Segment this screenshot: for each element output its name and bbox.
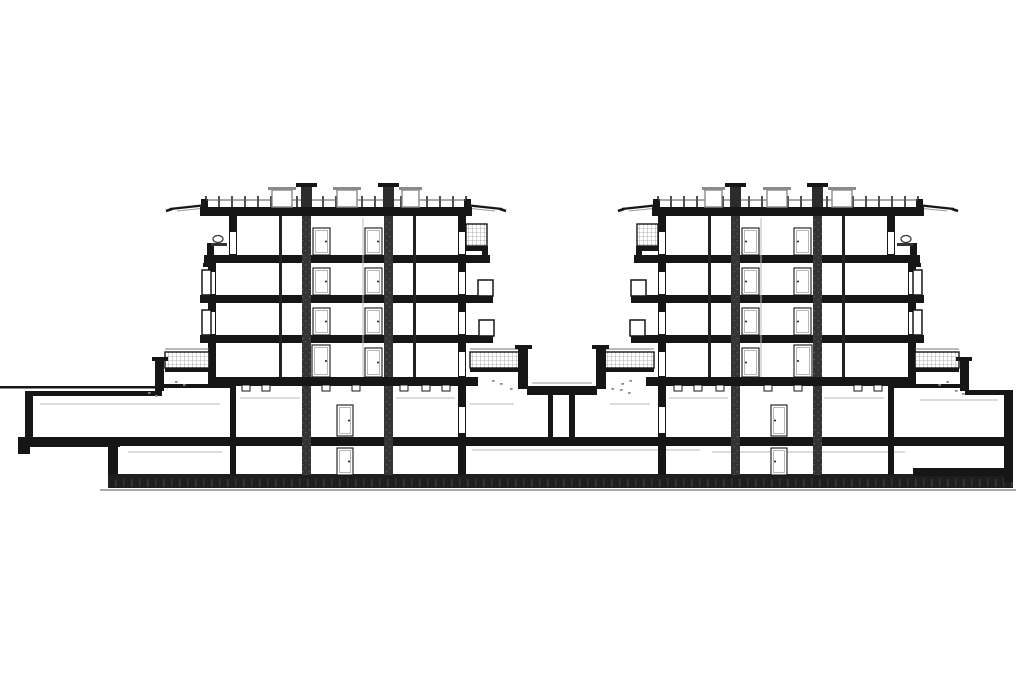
washbasin-base	[897, 243, 913, 246]
ceiling-vent	[674, 385, 682, 391]
balcony-railing	[478, 280, 493, 296]
roof-slab	[652, 207, 924, 216]
balcony-railing	[913, 270, 922, 295]
apartment-door	[742, 308, 759, 335]
partition-wall	[279, 216, 282, 377]
courtyard-wall-cap	[592, 345, 609, 349]
chimney-cap	[807, 183, 828, 187]
ground-step-right	[965, 390, 1013, 395]
basement-door	[771, 405, 787, 436]
eaves-left-tip	[952, 209, 958, 211]
apartment-door	[365, 348, 382, 377]
planter-floor	[600, 368, 654, 372]
window-opening	[659, 232, 665, 254]
basement-wall	[230, 386, 236, 475]
vent-stack	[337, 190, 357, 207]
eaves-right-tip	[500, 209, 506, 211]
basement1-floor-notch	[18, 445, 30, 454]
window-opening	[659, 312, 665, 334]
ceiling-vent	[794, 385, 802, 391]
washbasin	[213, 236, 223, 243]
balcony-railing-hatched	[637, 224, 658, 246]
planter-hatched	[470, 352, 524, 368]
basement-door-opening	[459, 407, 465, 433]
stair-core-wall-basement	[731, 386, 740, 475]
stair-core-wall	[731, 216, 740, 377]
site-and-basement	[0, 383, 1016, 490]
bollard	[155, 361, 164, 391]
basement1-floor-left	[18, 437, 120, 447]
chimney	[812, 186, 823, 207]
stair-core-wall	[813, 216, 822, 377]
stair-core-wall-basement	[813, 386, 822, 475]
planter-hatched	[600, 352, 654, 368]
apartment-door	[313, 308, 330, 335]
ground-line-left	[0, 386, 162, 389]
building-left	[152, 183, 532, 475]
balcony-railing	[631, 280, 646, 296]
basement-wall	[888, 386, 894, 475]
apartment-door	[742, 228, 759, 255]
basement1-top-slab-left	[25, 391, 162, 396]
basement-mid-slab	[118, 437, 1013, 446]
apartment-door	[313, 268, 330, 295]
balcony-railing-hatched	[466, 224, 487, 246]
courtyard-column	[569, 395, 575, 437]
ceiling-vent	[874, 385, 882, 391]
floor-slab-2	[200, 335, 493, 343]
planter-floor	[470, 368, 524, 372]
floor-slab-3	[200, 295, 493, 303]
washbasin	[901, 236, 911, 243]
vent-stack-cap	[333, 187, 361, 190]
bollard	[960, 361, 969, 391]
eaves-right-tip	[618, 209, 624, 211]
stair-core-wall-basement	[384, 386, 393, 475]
apartment-door	[365, 268, 382, 295]
chimney-cap	[725, 183, 746, 187]
ceiling-vent	[442, 385, 450, 391]
apartment-door	[794, 268, 811, 295]
basement1-left-wall	[25, 391, 33, 439]
ceiling-vent	[242, 385, 250, 391]
planter-floor	[915, 368, 959, 372]
courtyard-column	[548, 395, 553, 437]
balcony-edge-post	[636, 246, 642, 258]
floor-slab-4	[634, 255, 920, 263]
courtyard-wall	[518, 349, 528, 389]
ceiling-vent	[262, 385, 270, 391]
entry-door	[794, 345, 812, 377]
basement-door	[337, 405, 353, 436]
courtyard-wall-cap	[515, 345, 532, 349]
planter-hatched	[915, 352, 959, 368]
window-opening	[459, 312, 465, 334]
foundation-slab	[108, 474, 1013, 488]
basement-door-opening	[659, 407, 665, 433]
stair-core-wall	[384, 216, 393, 377]
vent-stack	[705, 190, 722, 207]
apartment-door	[365, 228, 382, 255]
basement-door	[337, 448, 353, 475]
balcony-railing	[913, 310, 922, 335]
roof-railing-posts	[658, 196, 918, 207]
building-section-drawing	[0, 0, 1024, 678]
chimney	[383, 186, 394, 207]
planter-floor	[165, 368, 209, 372]
vent-stack-cap	[268, 187, 296, 190]
roof-railing-posts	[206, 196, 466, 207]
ceiling-vent	[352, 385, 360, 391]
balcony-railing	[202, 270, 211, 295]
apartment-door	[742, 268, 759, 295]
chimney	[730, 186, 741, 207]
terrace-door-opening	[888, 232, 894, 254]
floor-slab-3	[631, 295, 924, 303]
planter-hatched	[165, 352, 209, 368]
partition-wall	[708, 216, 711, 377]
apartment-door	[794, 228, 811, 255]
vent-stack-cap	[763, 187, 791, 190]
terrace-door-opening	[230, 232, 236, 254]
chimney	[301, 186, 312, 207]
ceiling-vent	[764, 385, 772, 391]
window-opening	[659, 352, 665, 376]
vent-stack	[402, 190, 419, 207]
vent-stack	[767, 190, 787, 207]
apartment-door	[742, 348, 759, 377]
balcony-railing	[202, 310, 211, 335]
ceiling-vent	[716, 385, 724, 391]
vent-stack	[272, 190, 292, 207]
balcony-railing	[630, 320, 645, 336]
window-opening	[659, 272, 665, 294]
courtyard-wall	[596, 349, 606, 389]
entry-door	[312, 345, 330, 377]
building-right	[592, 183, 972, 475]
apartment-door	[365, 308, 382, 335]
apartment-door	[313, 228, 330, 255]
ceiling-vent	[322, 385, 330, 391]
window-opening	[459, 352, 465, 376]
window-opening	[459, 232, 465, 254]
basement-door	[771, 448, 787, 475]
ceiling-vent	[854, 385, 862, 391]
ceiling-vent	[694, 385, 702, 391]
window-opening	[459, 272, 465, 294]
partition-wall	[842, 216, 845, 377]
right-plinth	[913, 468, 1013, 476]
stair-core-wall	[302, 216, 311, 377]
chimney-cap	[378, 183, 399, 187]
stair-core-wall-basement	[302, 386, 311, 475]
roof-slab	[200, 207, 472, 216]
vent-stack-cap	[702, 187, 725, 190]
floor-slab-4	[204, 255, 490, 263]
partition-wall	[413, 216, 416, 377]
floor-slab-2	[631, 335, 924, 343]
courtyard-slab	[527, 386, 597, 395]
balcony-railing	[479, 320, 494, 336]
eaves-left-tip	[166, 209, 172, 211]
bollard-cap	[956, 357, 972, 361]
ceiling-vent	[400, 385, 408, 391]
architectural-section-page	[0, 0, 1024, 678]
apartment-door	[794, 308, 811, 335]
balcony-edge-post	[482, 246, 488, 258]
vent-stack-cap	[828, 187, 856, 190]
bollard-cap	[152, 357, 168, 361]
washbasin-base	[211, 243, 227, 246]
vent-stack	[832, 190, 852, 207]
vent-stack-cap	[399, 187, 422, 190]
chimney-cap	[296, 183, 317, 187]
ceiling-vent	[422, 385, 430, 391]
